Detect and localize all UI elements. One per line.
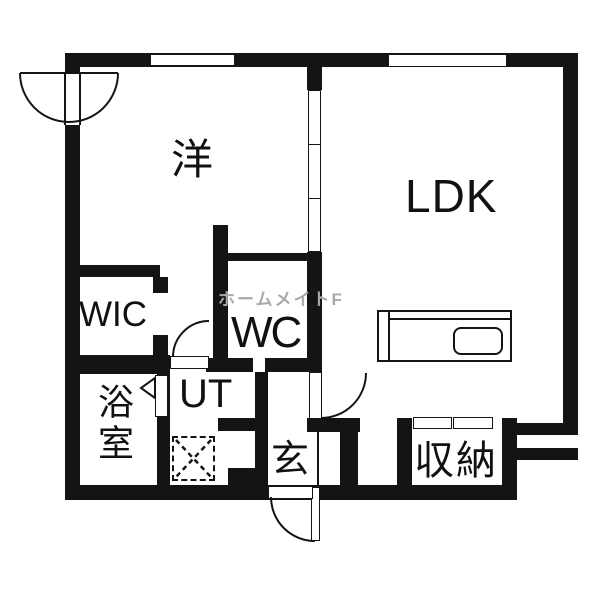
- balcony-door-swing-arc: [20, 73, 118, 122]
- floorplan-canvas: 洋 LDK WIC WC UT 浴室 玄 収納 ホームメイトF: [0, 0, 600, 600]
- room-label-wc: WC: [231, 311, 300, 355]
- room-label-bathroom: 浴室: [95, 383, 131, 465]
- room-label-ldk: LDK: [405, 173, 497, 219]
- hall-door-swing-arc: [173, 321, 209, 357]
- room-label-entrance: 玄: [271, 441, 309, 479]
- room-label-ut: UT: [179, 374, 232, 414]
- room-label-western: 洋: [171, 139, 213, 181]
- room-label-storage: 収納: [414, 441, 498, 481]
- ldk-door-swing-arc: [321, 373, 366, 418]
- washer-pan-cross-1: [176, 440, 211, 477]
- washer-pan-cross-2: [176, 440, 211, 477]
- entrance-door-swing-arc: [271, 497, 315, 541]
- bath-door-triangle-icon: [141, 378, 155, 398]
- room-label-wic: WIC: [79, 297, 147, 332]
